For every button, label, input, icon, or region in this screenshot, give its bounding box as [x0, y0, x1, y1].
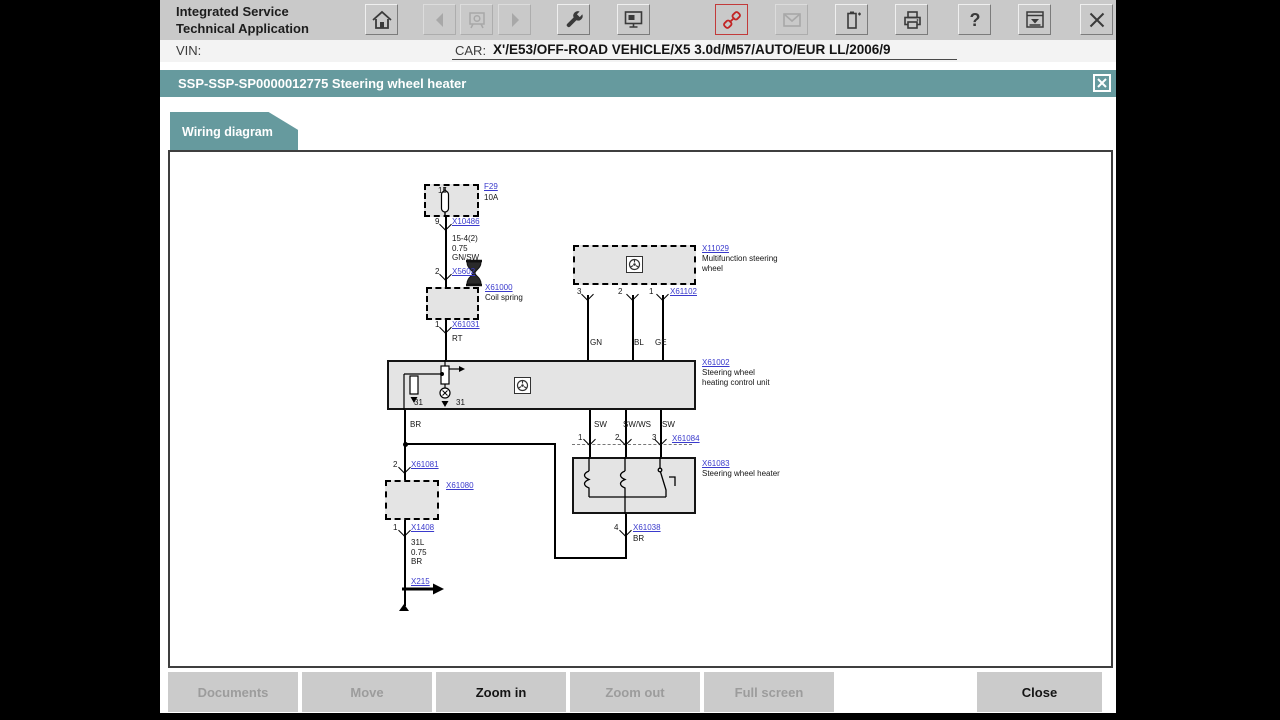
car-underline: [452, 59, 957, 60]
diagram-label: 31: [414, 398, 423, 408]
vehicle-info-bar: VIN: CAR: X'/E53/OFF-ROAD VEHICLE/X5 3.0…: [160, 40, 1116, 62]
diagram-label: SW/WS: [623, 420, 651, 430]
home-icon: [370, 8, 394, 32]
coil-spring-2-box: [385, 480, 439, 520]
connector-pin: [398, 524, 411, 537]
diagram-label: Steering wheel heater: [702, 469, 780, 479]
diagram-link[interactable]: X11029: [702, 244, 729, 253]
diagram-label: Multifunction steering wheel: [702, 254, 778, 273]
close-icon: [1085, 8, 1109, 32]
diagram-link[interactable]: F29: [484, 182, 498, 191]
connector-icon: [720, 8, 744, 32]
diagram-label: 2: [615, 433, 619, 443]
diagram-viewport: F29X10486X5602X61000X61031X11029X61102X6…: [168, 150, 1113, 668]
full-screen-button: Full screen: [704, 672, 834, 712]
app-title-line2: Technical Application: [176, 21, 309, 38]
app-title: Integrated Service Technical Application: [176, 4, 309, 38]
battery-icon: [840, 8, 864, 32]
printer-icon: [900, 8, 924, 32]
documents-button: Documents: [168, 672, 298, 712]
diagram-link[interactable]: X5602: [452, 267, 475, 276]
diagram-label: 10A: [484, 193, 498, 203]
car-value: X'/E53/OFF-ROAD VEHICLE/X5 3.0d/M57/AUTO…: [493, 42, 891, 57]
workshop-button: [460, 4, 493, 35]
diagram-label: 2: [618, 287, 622, 297]
display-button[interactable]: [617, 4, 650, 35]
diagram-link[interactable]: X61002: [702, 358, 730, 367]
display-icon: [622, 8, 646, 32]
printer-button[interactable]: [895, 4, 928, 35]
wire: [632, 295, 634, 362]
workshop-icon: [465, 8, 489, 32]
tab-label: Wiring diagram: [182, 125, 273, 139]
diagram-label: 1: [649, 287, 653, 297]
help-icon: ?: [963, 8, 987, 32]
diagram-label: 15-4(2) 0.75 GN/SW: [452, 234, 479, 263]
diagram-link[interactable]: X1408: [411, 523, 434, 532]
diagram-label: 9: [435, 217, 439, 227]
diagram-label: 2: [393, 460, 397, 470]
connector-pin: [656, 288, 669, 301]
car-label: CAR:: [455, 43, 486, 58]
zoom-out-button: Zoom out: [570, 672, 700, 712]
zoom-in-button[interactable]: Zoom in: [436, 672, 566, 712]
diagram-label: BR: [410, 420, 421, 430]
home-button[interactable]: [365, 4, 398, 35]
diagram-label: 15: [438, 186, 447, 196]
back-icon: [428, 8, 452, 32]
diagram-link[interactable]: X61084: [672, 434, 700, 443]
ista-window: Integrated Service Technical Application…: [160, 0, 1116, 713]
steering-wheel-icon: [514, 377, 531, 399]
diagram-label: 3: [652, 433, 656, 443]
wire: [662, 295, 664, 362]
app-title-line1: Integrated Service: [176, 4, 309, 21]
ground-end-symbol: [398, 599, 410, 617]
diagram-link[interactable]: X61038: [633, 523, 661, 532]
document-title-bar: SSP-SSP-SP0000012775 Steering wheel heat…: [160, 70, 1116, 97]
document-close-button[interactable]: [1093, 74, 1111, 92]
diagram-label: 31: [456, 398, 465, 408]
wire: [404, 443, 556, 445]
diagram-label: 1: [393, 523, 397, 533]
junction-dot: [403, 442, 408, 447]
toolbar: Integrated Service Technical Application…: [160, 0, 1116, 41]
diagram-label: BL: [634, 338, 644, 348]
move-button: Move: [302, 672, 432, 712]
connector-pin: [581, 288, 594, 301]
diagram-link[interactable]: X215: [411, 577, 430, 586]
diagram-link[interactable]: X61083: [702, 459, 730, 468]
svg-text:?: ?: [969, 10, 980, 30]
window-selector-icon: [1023, 8, 1047, 32]
diagram-link[interactable]: X61080: [446, 481, 474, 490]
tab-wiring-diagram[interactable]: Wiring diagram: [170, 112, 298, 150]
battery-button[interactable]: [835, 4, 868, 35]
diagram-link[interactable]: X61102: [670, 287, 697, 296]
diagram-label: 3: [577, 287, 581, 297]
vin-label: VIN:: [176, 43, 201, 58]
diagram-label: 31L 0.75 BR: [411, 538, 427, 567]
close-button[interactable]: [1080, 4, 1113, 35]
diagram-link[interactable]: X10486: [452, 217, 480, 226]
diagram-label: 1: [578, 433, 582, 443]
diagram-label: SW: [594, 420, 607, 430]
connector-pin: [439, 321, 452, 334]
mail-button: [775, 4, 808, 35]
connector-pin: [619, 524, 632, 537]
connector-pin: [626, 288, 639, 301]
connector-button[interactable]: [715, 4, 748, 35]
close-icon: [1096, 77, 1108, 89]
diagram-label: 2: [435, 267, 439, 277]
diagram-label: GE: [655, 338, 667, 348]
heater-internals-symbol: [572, 457, 696, 519]
diagram-label: 4: [614, 523, 618, 533]
help-button[interactable]: ?: [958, 4, 991, 35]
diagram-label: Coil spring: [485, 293, 523, 303]
mail-icon: [780, 8, 804, 32]
diagram-label: 1: [435, 320, 439, 330]
connector-pin: [439, 268, 452, 281]
diagram-label: BR: [633, 534, 644, 544]
close-button[interactable]: Close: [977, 672, 1102, 712]
screen: Integrated Service Technical Application…: [0, 0, 1280, 720]
diagram-label: RT: [452, 334, 463, 344]
forward-icon: [503, 8, 527, 32]
diagram-label: SW: [662, 420, 675, 430]
diagram-link[interactable]: X61000: [485, 283, 513, 292]
window-selector-button[interactable]: [1018, 4, 1051, 35]
wire: [554, 557, 627, 559]
wiring-diagram: F29X10486X5602X61000X61031X11029X61102X6…: [170, 152, 1111, 666]
wrench-button[interactable]: [557, 4, 590, 35]
wire: [587, 295, 589, 362]
steering-wheel-icon: [626, 256, 643, 278]
document-title: SSP-SSP-SP0000012775 Steering wheel heat…: [178, 76, 466, 91]
diagram-label: GN: [590, 338, 602, 348]
diagram-link[interactable]: X61081: [411, 460, 439, 469]
back-button: [423, 4, 456, 35]
connector-pin: [398, 461, 411, 474]
wire: [554, 443, 556, 559]
diagram-link[interactable]: X61031: [452, 320, 480, 329]
wrench-icon: [562, 8, 586, 32]
diagram-label: Steering wheel heating control unit: [702, 368, 770, 387]
forward-button: [498, 4, 531, 35]
